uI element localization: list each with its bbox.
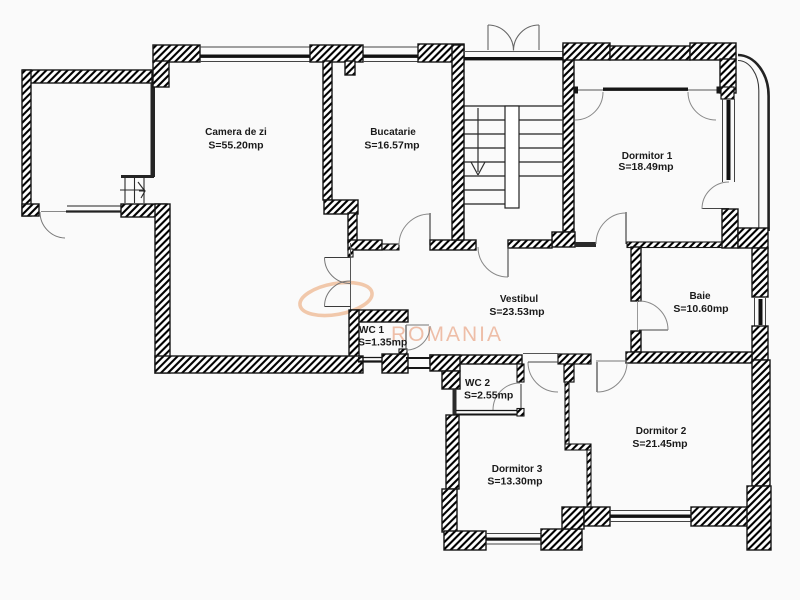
svg-text:S=10.60mp: S=10.60mp xyxy=(673,303,728,315)
svg-text:WC 2: WC 2 xyxy=(465,378,490,389)
svg-text:Camera de zi: Camera de zi xyxy=(205,127,267,138)
svg-text:ROMANIA: ROMANIA xyxy=(391,323,503,346)
svg-text:Dormitor 3: Dormitor 3 xyxy=(492,464,543,475)
svg-text:Bucatarie: Bucatarie xyxy=(370,127,416,138)
svg-text:Dormitor 2: Dormitor 2 xyxy=(636,426,687,437)
svg-text:S=1.35mp: S=1.35mp xyxy=(358,337,407,349)
svg-text:S=13.30mp: S=13.30mp xyxy=(487,476,542,488)
svg-text:WC 1: WC 1 xyxy=(359,325,384,336)
svg-text:S=55.20mp: S=55.20mp xyxy=(208,140,263,152)
svg-text:S=23.53mp: S=23.53mp xyxy=(489,306,544,318)
svg-text:S=21.45mp: S=21.45mp xyxy=(632,438,687,450)
svg-text:Baie: Baie xyxy=(689,291,711,302)
svg-text:Vestibul: Vestibul xyxy=(500,294,539,305)
svg-text:S=2.55mp: S=2.55mp xyxy=(464,390,513,402)
svg-text:S=18.49mp: S=18.49mp xyxy=(618,161,673,173)
svg-text:S=16.57mp: S=16.57mp xyxy=(364,140,419,152)
